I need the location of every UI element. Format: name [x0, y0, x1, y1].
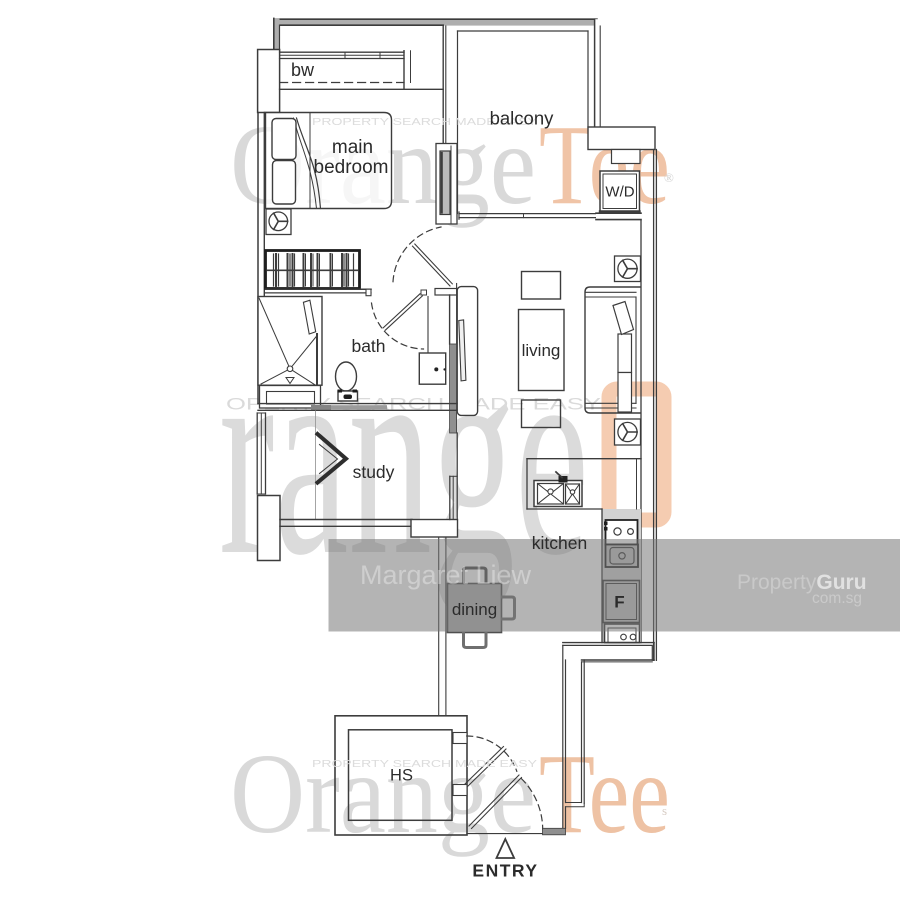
- svg-text:Tee: Tee: [539, 730, 670, 857]
- svg-text:main: main: [332, 137, 373, 158]
- svg-text:HS: HS: [390, 767, 413, 785]
- svg-text:bedroom: bedroom: [314, 157, 389, 178]
- svg-text:s: s: [662, 803, 667, 818]
- svg-text:F: F: [614, 593, 624, 612]
- svg-text:W/D: W/D: [605, 184, 634, 201]
- svg-text:Margaret Liew: Margaret Liew: [360, 560, 532, 590]
- svg-text:kitchen: kitchen: [532, 533, 587, 553]
- svg-text:balcony: balcony: [490, 108, 555, 129]
- svg-text:bw: bw: [291, 60, 315, 80]
- svg-text:dining: dining: [452, 600, 497, 619]
- svg-text:PROPERTY SEARCH MADE EASY: PROPERTY SEARCH MADE EASY: [312, 759, 537, 770]
- svg-text:Orange: Orange: [230, 730, 536, 857]
- svg-text:bath: bath: [351, 336, 385, 356]
- svg-text:living: living: [522, 341, 561, 360]
- svg-text:ENTRY: ENTRY: [472, 861, 538, 881]
- svg-text:®: ®: [664, 170, 674, 185]
- svg-text:com.sg: com.sg: [812, 590, 862, 607]
- svg-text:study: study: [353, 462, 395, 482]
